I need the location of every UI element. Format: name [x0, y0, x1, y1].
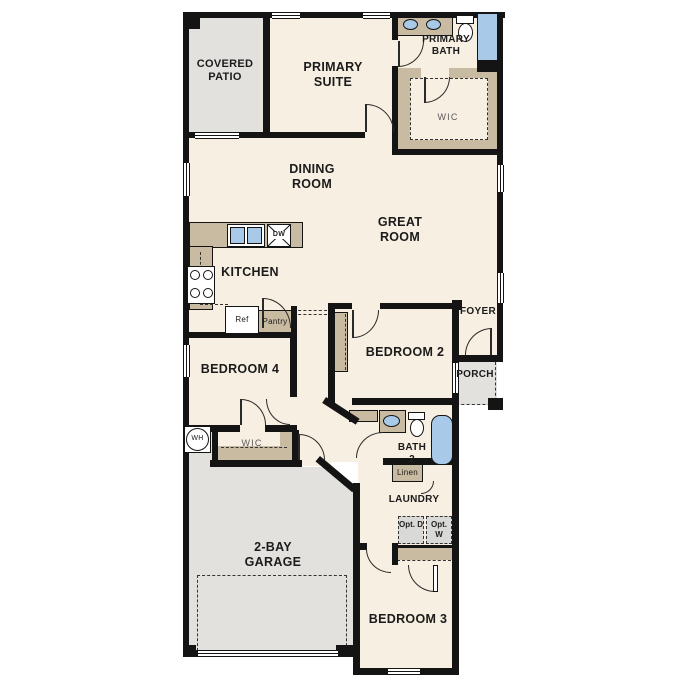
wall-segment [210, 460, 302, 467]
hall-opening-dash-2 [293, 314, 327, 315]
room-label-primary-wic: WIC [428, 112, 468, 123]
sink-basin-icon [247, 227, 262, 244]
burner-icon [190, 270, 200, 280]
wall-post [477, 60, 503, 72]
door-leaf-bedroom3 [433, 565, 438, 592]
room-label-great-room: GREAT ROOM [365, 215, 435, 245]
room-label-dining-room: DINING ROOM [277, 162, 347, 192]
wall-post [336, 645, 360, 657]
window [388, 668, 420, 675]
wall-segment [452, 355, 503, 362]
fixture-label-wh: WH [187, 435, 208, 443]
wall-segment [263, 12, 270, 138]
bathtub-icon [431, 415, 453, 465]
room-label-porch: PORCH [453, 369, 497, 381]
door-leaf [398, 41, 400, 67]
primary-wic-floor [410, 78, 488, 140]
garage-door-opening [198, 650, 338, 657]
wall-segment [328, 308, 335, 403]
wall-segment [352, 398, 458, 405]
opt-dryer-box: Opt. D [398, 516, 424, 544]
wall-segment [392, 149, 503, 155]
window [363, 12, 390, 19]
dishwasher-label: DW [269, 231, 289, 239]
opt-washer-box: Opt. W [426, 516, 452, 544]
wall-segment [291, 306, 297, 334]
window [183, 345, 190, 377]
room-label-foyer: FOYER [455, 306, 501, 318]
room-label-primary-bath: PRIMARY BATH [411, 34, 481, 58]
wall-segment [212, 430, 218, 462]
garage-bay-dash [197, 575, 347, 651]
wall-segment [290, 332, 297, 397]
wall-post [187, 16, 200, 29]
room-label-bedroom-2: BEDROOM 2 [355, 345, 455, 360]
fixture-label-ref: Ref [227, 315, 257, 324]
kitchen-cabinet-dash-h [200, 304, 228, 305]
floor-plan: DW Opt. D Opt. W COVERED PATIO PRIMARY S… [0, 0, 687, 687]
sink-basin-icon [230, 227, 245, 244]
door-leaf [352, 310, 354, 338]
sink-icon [383, 415, 400, 427]
door-leaf [298, 434, 300, 460]
toilet-icon [410, 419, 424, 437]
wall-post [183, 645, 196, 657]
window [497, 273, 504, 303]
bedroom2-closet-dash [345, 314, 346, 370]
room-label-bedroom-4: BEDROOM 4 [190, 362, 290, 377]
wall-segment [392, 66, 398, 152]
room-label-garage: 2-BAY GARAGE [228, 540, 318, 570]
room-label-bedroom-3: BEDROOM 3 [358, 612, 458, 627]
hall-opening-dash-1 [293, 310, 327, 311]
room-label-linen: Linen [393, 468, 422, 477]
room-label-bath-2: BATH 2 [394, 442, 430, 466]
sink-icon [426, 19, 441, 30]
burner-icon [203, 288, 213, 298]
door-leaf [240, 399, 242, 425]
burner-icon [190, 288, 200, 298]
window [183, 163, 190, 196]
window [497, 165, 504, 192]
room-label-kitchen: KITCHEN [205, 265, 295, 280]
bedroom3-closet-dash [397, 560, 451, 561]
door-leaf [365, 104, 367, 132]
room-label-primary-suite: PRIMARY SUITE [283, 60, 383, 90]
wall-post [488, 398, 503, 410]
wall-segment [392, 543, 398, 565]
sink-icon [403, 19, 418, 30]
patio-sliding-door [195, 132, 239, 139]
wall-segment [392, 12, 398, 40]
fixture-label-pantry: Pantry [259, 317, 291, 326]
room-label-wic4: WIC [232, 438, 272, 449]
window [272, 12, 300, 19]
wall-segment [353, 543, 367, 550]
room-label-covered-patio: COVERED PATIO [194, 58, 256, 84]
bedroom3-closet-shelf [396, 545, 452, 560]
wall-segment [380, 303, 462, 309]
door-leaf [490, 328, 492, 355]
door-leaf [424, 77, 426, 103]
room-label-laundry: LAUNDRY [378, 494, 450, 506]
